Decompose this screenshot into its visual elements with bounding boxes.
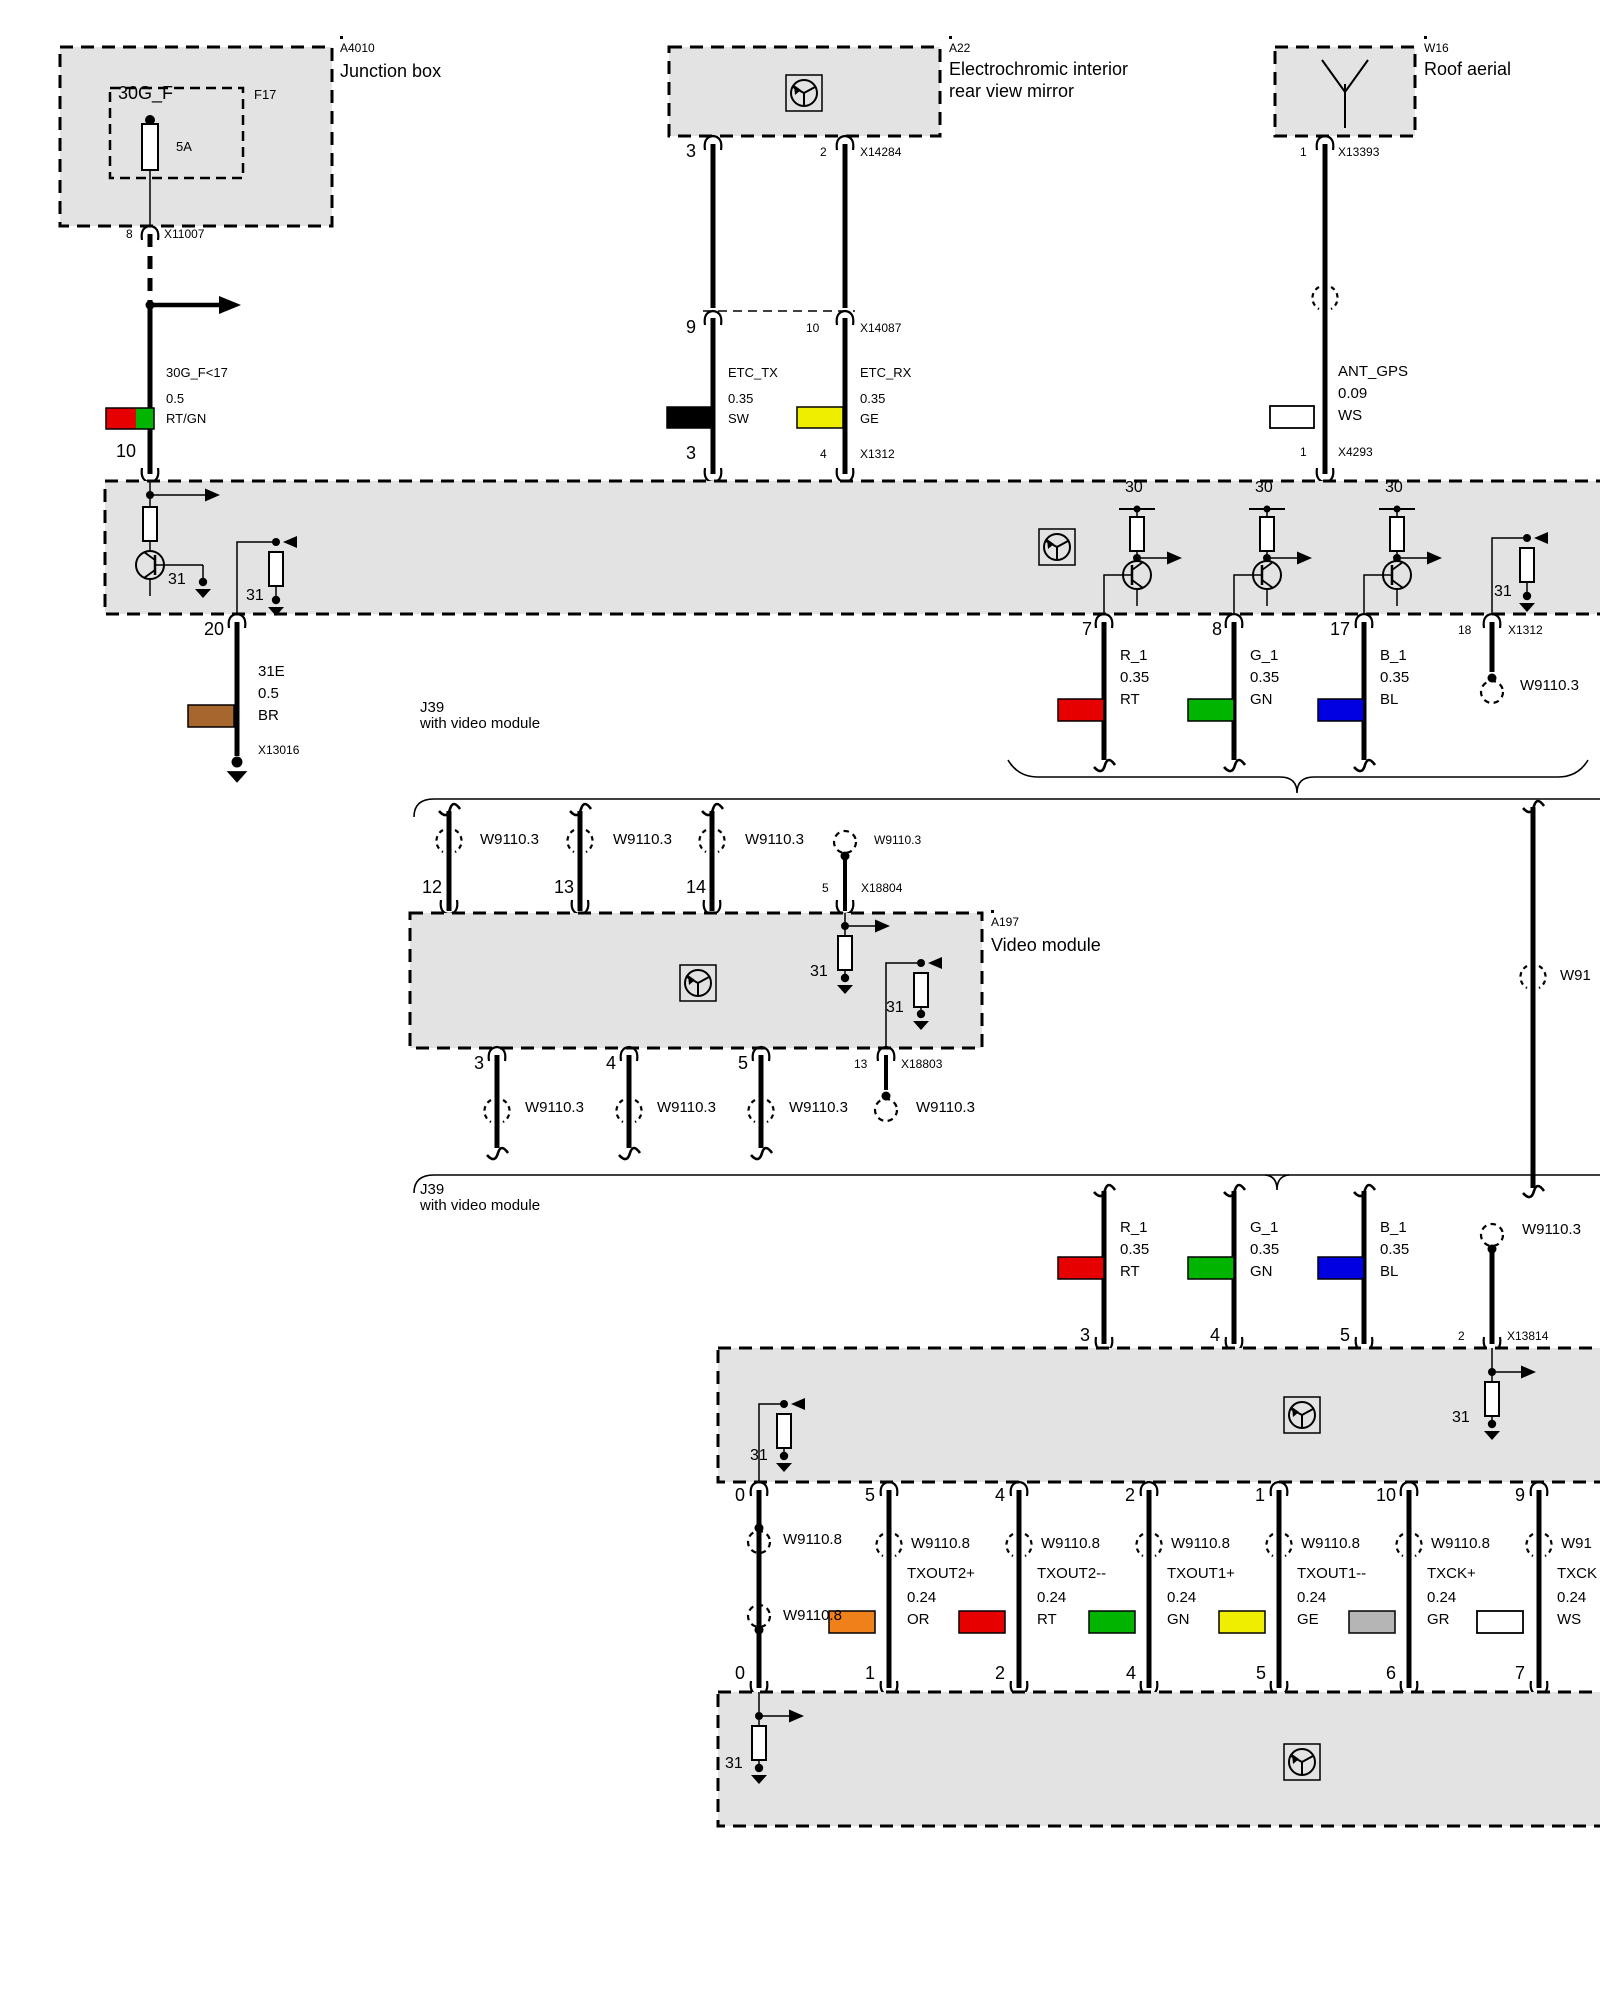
video-out-connector: X18803: [901, 1058, 942, 1071]
rgb1-g-gauge: 0.35: [1250, 670, 1279, 686]
ground-wire-gauge: 0.5: [258, 686, 279, 702]
tx-wire-4-gauge: 0.24: [1427, 1590, 1456, 1606]
video-in-pin2: 13: [554, 878, 574, 897]
junction-box-title: Junction box: [340, 62, 441, 81]
monitor-pin-top-1: 5: [865, 1486, 875, 1505]
display-ground: 31: [725, 1756, 743, 1773]
video-in-shield4: W9110.3: [874, 834, 921, 847]
swatch-rt: [106, 408, 136, 429]
video-in-pin3: 14: [686, 878, 706, 897]
supply-wire-signal: 30G_F<17: [166, 366, 228, 380]
aerial-pin-top: 1: [1300, 146, 1307, 159]
display-pin-4: 5: [1256, 1664, 1266, 1683]
mirror-box-outline: [669, 36, 952, 136]
j39-upper-id: J39: [420, 700, 444, 716]
ant-wire-signal: ANT_GPS: [1338, 364, 1408, 380]
j39-lower-id: J39: [420, 1182, 444, 1198]
supply-ref-1: 30: [1125, 480, 1143, 497]
j39-upper-note: with video module: [420, 716, 540, 732]
rgb1-b-gauge: 0.35: [1380, 670, 1409, 686]
mirror-connector: X14284: [860, 146, 901, 159]
tx-wire-2-code: GN: [1167, 1612, 1190, 1628]
rgb1-g-signal: G_1: [1250, 648, 1278, 664]
swatch-ge: [797, 407, 843, 428]
aerial-connector-bottom: X4293: [1338, 446, 1373, 459]
swatch-ws: [1270, 406, 1314, 428]
tx-wire-1-shield: W9110.8: [1041, 1536, 1100, 1552]
wiring-layer: [0, 0, 1600, 2000]
ground-wire-connector: X13016: [258, 744, 299, 757]
rgb2-r-code: RT: [1120, 1264, 1140, 1280]
video-module-outline: [410, 910, 994, 1048]
tx-wire-0-signal: TXOUT2+: [907, 1566, 975, 1582]
supply-wire-gauge: 0.5: [166, 392, 184, 406]
etc-tx-gauge: 0.35: [728, 392, 753, 406]
rgb1-shield: W9110.3: [1520, 678, 1579, 694]
head-unit-pin-r: 7: [1082, 620, 1092, 639]
bypass-shield: W91: [1560, 968, 1591, 984]
mirror-pin-right: 2: [820, 146, 827, 159]
ground-wire-code: BR: [258, 708, 279, 724]
tx-wire-3-signal: TXOUT1--: [1297, 1566, 1366, 1582]
rgb2-b-code: BL: [1380, 1264, 1398, 1280]
rgb2-b-signal: B_1: [1380, 1220, 1407, 1236]
display-pin-0: 0: [735, 1664, 745, 1683]
aerial-pin-bottom: 1: [1300, 446, 1307, 459]
mirror-title-line1: Electrochromic interior: [949, 60, 1128, 79]
head-unit-pin-shield: 18: [1458, 624, 1471, 637]
rgb2-g-signal: G_1: [1250, 1220, 1278, 1236]
video-in-shield1: W9110.3: [480, 832, 539, 848]
head-unit-pin-g: 8: [1212, 620, 1222, 639]
monitor-pin-top-0: 0: [735, 1486, 745, 1505]
inline-connector-id: X14087: [860, 322, 901, 335]
monitor-ground-1: 31: [750, 1448, 768, 1465]
video-out-pin4: 13: [854, 1058, 867, 1071]
ground-ref-1: 31: [168, 572, 186, 589]
tx-wire-0-code: OR: [907, 1612, 930, 1628]
rgb1-b-signal: B_1: [1380, 648, 1407, 664]
swatch-r2: [1058, 1257, 1104, 1279]
display-pin-1: 1: [865, 1664, 875, 1683]
swatch-g1: [1188, 699, 1234, 721]
swatch-b2: [1318, 1257, 1364, 1279]
ground-ref-2: 31: [246, 588, 264, 605]
swatch-gn2: [1089, 1611, 1135, 1633]
swatch-gn: [136, 408, 154, 429]
head-unit-pin-ground: 20: [204, 620, 224, 639]
supply-ref-3: 30: [1385, 480, 1403, 497]
swatch-ge2: [1219, 1611, 1265, 1633]
display-pin-5: 6: [1386, 1664, 1396, 1683]
video-ground-2: 31: [886, 1000, 904, 1017]
aerial-connector-top: X13393: [1338, 146, 1379, 159]
monitor-pin-top-2: 4: [995, 1486, 1005, 1505]
tx-wire-2-shield: W9110.8: [1171, 1536, 1230, 1552]
tx-wire-5-gauge: 0.24: [1557, 1590, 1586, 1606]
head-unit-connector-bottom: X1312: [1508, 624, 1543, 637]
video-in-connector: X18804: [861, 882, 902, 895]
swatch-b1: [1318, 699, 1364, 721]
video-module-ref: A197: [991, 916, 1019, 929]
video-module-title: Video module: [991, 936, 1101, 955]
ant-wire-code: WS: [1338, 408, 1362, 424]
ant-wire-gauge: 0.09: [1338, 386, 1367, 402]
swatch-rt2: [959, 1611, 1005, 1633]
junction-box-ref: A4010: [340, 42, 375, 55]
head-unit-outline: [105, 481, 1600, 614]
roof-aerial-outline: [1275, 36, 1427, 136]
display-pin-3: 4: [1126, 1664, 1136, 1683]
mirror-wires: [667, 136, 855, 482]
bypass-wire: [1520, 801, 1545, 1197]
swatch-r1: [1058, 699, 1104, 721]
tx-wire-1-signal: TXOUT2--: [1037, 1566, 1106, 1582]
display-unit-outline: [718, 1692, 1600, 1826]
tx-wire-0-gauge: 0.24: [907, 1590, 936, 1606]
fuse-ref: F17: [254, 88, 276, 102]
rgb2-b-gauge: 0.35: [1380, 1242, 1409, 1258]
junction-box-connector: X11007: [164, 228, 204, 241]
branch-arrow-icon: [219, 296, 241, 314]
monitor-pin-top-5: 10: [1376, 1486, 1396, 1505]
video-out-shield4: W9110.3: [916, 1100, 975, 1116]
tx-wire-2-gauge: 0.24: [1167, 1590, 1196, 1606]
head-unit-pin-supply: 10: [116, 442, 136, 461]
monitor-ground-2: 31: [1452, 1410, 1470, 1427]
aerial-wire: [1270, 136, 1338, 482]
tx-wire-3-code: GE: [1297, 1612, 1319, 1628]
junction-box-pin: 8: [126, 228, 133, 241]
head-unit-pin-etc-tx: 3: [686, 444, 696, 463]
video-out-shield3: W9110.3: [789, 1100, 848, 1116]
head-unit-pin-b: 17: [1330, 620, 1350, 639]
rgb2-g-gauge: 0.35: [1250, 1242, 1279, 1258]
swatch-br: [188, 705, 234, 727]
monitor-pin-b: 5: [1340, 1326, 1350, 1345]
inline-pin-right: 10: [806, 322, 819, 335]
display-pin-2: 2: [995, 1664, 1005, 1683]
tx-wire-3-shield: W9110.8: [1301, 1536, 1360, 1552]
tx-wire-5-signal: TXCK: [1557, 1566, 1597, 1582]
video-out-pin1: 3: [474, 1054, 484, 1073]
fuse-rating: 5A: [176, 140, 192, 154]
aerial-ref: W16: [1424, 42, 1449, 55]
swatch-sw: [667, 407, 713, 428]
swatch-ws2: [1477, 1611, 1523, 1633]
tx-first-shield-bottom: W9110.8: [783, 1608, 842, 1624]
rgb2-g-code: GN: [1250, 1264, 1273, 1280]
supply-wire-code: RT/GN: [166, 412, 206, 426]
etc-rx-gauge: 0.35: [860, 392, 885, 406]
head-unit-output-wires: [188, 614, 1503, 783]
video-out-shield1: W9110.3: [525, 1100, 584, 1116]
video-in-pin4: 5: [822, 882, 829, 895]
monitor-pin-top-6: 9: [1515, 1486, 1525, 1505]
etc-tx-code: SW: [728, 412, 749, 426]
tx-wire-4-signal: TXCK+: [1427, 1566, 1476, 1582]
supply-ref-2: 30: [1255, 480, 1273, 497]
rgb2-shield: W9110.3: [1522, 1222, 1581, 1238]
video-input-wires: [436, 804, 856, 914]
monitor-pin-top-4: 1: [1255, 1486, 1265, 1505]
tx-wire-3-gauge: 0.24: [1297, 1590, 1326, 1606]
mirror-ref: A22: [949, 42, 970, 55]
ground-ref-3: 31: [1494, 584, 1512, 601]
display-pin-6: 7: [1515, 1664, 1525, 1683]
junction-box-outline: [60, 36, 343, 226]
wiring-diagram: A4010 Junction box 30G_F F17 5A 8 X11007…: [0, 0, 1600, 2000]
rgb1-b-code: BL: [1380, 692, 1398, 708]
mirror-title-line2: rear view mirror: [949, 82, 1074, 101]
monitor-pin-shield: 2: [1458, 1330, 1465, 1343]
tx-wire-1-gauge: 0.24: [1037, 1590, 1066, 1606]
ground-wire-signal: 31E: [258, 664, 285, 680]
etc-rx-signal: ETC_RX: [860, 366, 911, 380]
swatch-g2: [1188, 1257, 1234, 1279]
rgb1-r-code: RT: [1120, 692, 1140, 708]
tx-wire-4-code: GR: [1427, 1612, 1450, 1628]
rgb1-r-signal: R_1: [1120, 648, 1148, 664]
tx-wire-5-code: WS: [1557, 1612, 1581, 1628]
monitor-pin-g: 4: [1210, 1326, 1220, 1345]
rgb2-r-gauge: 0.35: [1120, 1242, 1149, 1258]
video-in-pin1: 12: [422, 878, 442, 897]
tx-first-shield-top: W9110.8: [783, 1532, 842, 1548]
video-ground-1: 31: [810, 964, 828, 981]
fuse-signal: 30G_F: [118, 84, 173, 103]
monitor-pin-top-3: 2: [1125, 1486, 1135, 1505]
tx-wire-4-shield: W9110.8: [1431, 1536, 1490, 1552]
head-unit-pin-etc-rx: 4: [820, 448, 827, 461]
aerial-title: Roof aerial: [1424, 60, 1511, 79]
etc-rx-code: GE: [860, 412, 879, 426]
j39-lower-note: with video module: [420, 1198, 540, 1214]
etc-tx-signal: ETC_TX: [728, 366, 778, 380]
monitor-connector: X13814: [1507, 1330, 1548, 1343]
head-unit-connector-top: X1312: [860, 448, 895, 461]
rgb2-r-signal: R_1: [1120, 1220, 1148, 1236]
video-out-pin3: 5: [738, 1054, 748, 1073]
inline-pin-left: 9: [686, 318, 696, 337]
tx-wire-5-shield: W91: [1561, 1536, 1592, 1552]
monitor-pin-r: 3: [1080, 1326, 1090, 1345]
rgb1-r-gauge: 0.35: [1120, 670, 1149, 686]
rgb1-g-code: GN: [1250, 692, 1273, 708]
tx-wire-0-shield: W9110.8: [911, 1536, 970, 1552]
mirror-pin-left: 3: [686, 142, 696, 161]
video-out-pin2: 4: [606, 1054, 616, 1073]
video-in-shield2: W9110.3: [613, 832, 672, 848]
tx-wire-1-code: RT: [1037, 1612, 1057, 1628]
video-out-shield2: W9110.3: [657, 1100, 716, 1116]
video-in-shield3: W9110.3: [745, 832, 804, 848]
tx-wire-2-signal: TXOUT1+: [1167, 1566, 1235, 1582]
swatch-gr: [1349, 1611, 1395, 1633]
